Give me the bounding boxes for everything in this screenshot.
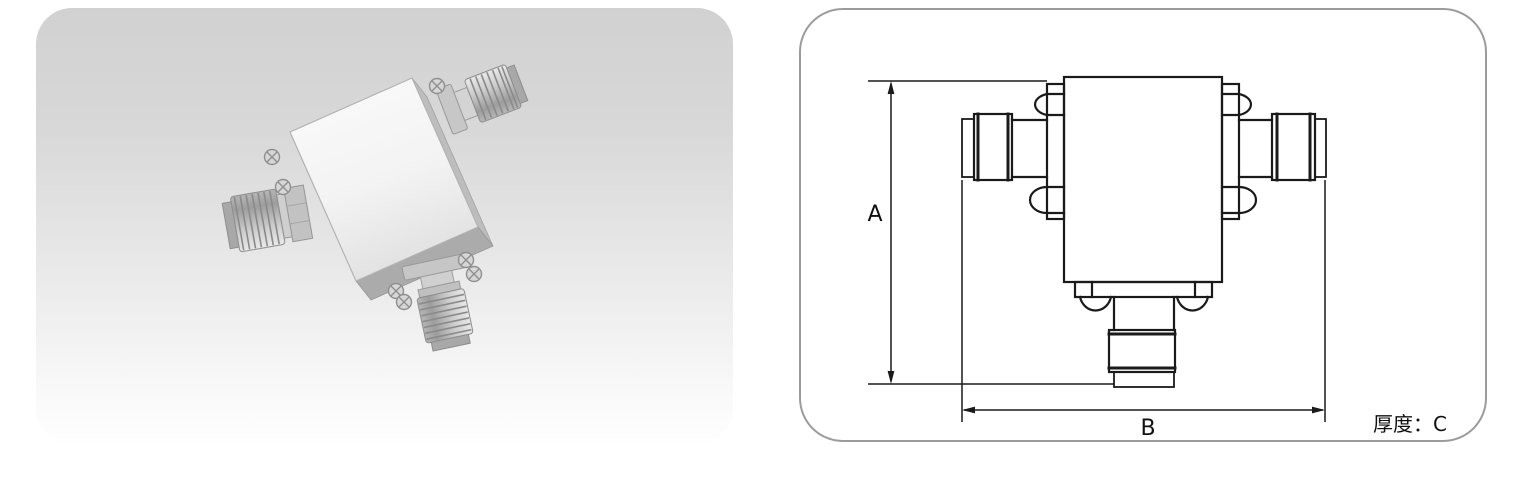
connector-right-outline xyxy=(1239,114,1326,180)
screw-icon xyxy=(265,150,280,165)
dimension-drawing-panel: A B 厚度：C xyxy=(799,8,1487,442)
device-outline xyxy=(962,77,1326,387)
dimension-lines xyxy=(868,81,1325,422)
sma-connector-left xyxy=(221,184,312,254)
screw-icon xyxy=(276,180,291,195)
body-outline xyxy=(1064,77,1222,282)
flange-left xyxy=(1030,84,1064,219)
sma-connector-top-right xyxy=(436,60,530,134)
screw-icon xyxy=(467,267,482,282)
dim-label-a: A xyxy=(867,202,882,227)
flange-right xyxy=(1222,84,1256,219)
screw-icon xyxy=(397,295,412,310)
page: A B 厚度：C xyxy=(0,0,1528,484)
thickness-label: 厚度：C xyxy=(1373,412,1447,436)
product-photo-panel xyxy=(36,8,733,445)
arrow-left-icon xyxy=(962,407,975,414)
screw-icon xyxy=(430,79,445,94)
arrow-down-icon xyxy=(888,371,895,384)
screw-icon xyxy=(459,253,474,268)
arrow-right-icon xyxy=(1312,407,1325,414)
arrow-up-icon xyxy=(888,81,895,94)
flange-bottom xyxy=(1075,282,1212,311)
connector-bottom-outline xyxy=(1109,297,1175,387)
dim-label-b: B xyxy=(1140,416,1155,440)
connector-left-outline xyxy=(962,114,1047,180)
dimension-drawing: A B 厚度：C xyxy=(801,10,1485,440)
product-photo xyxy=(36,8,733,445)
